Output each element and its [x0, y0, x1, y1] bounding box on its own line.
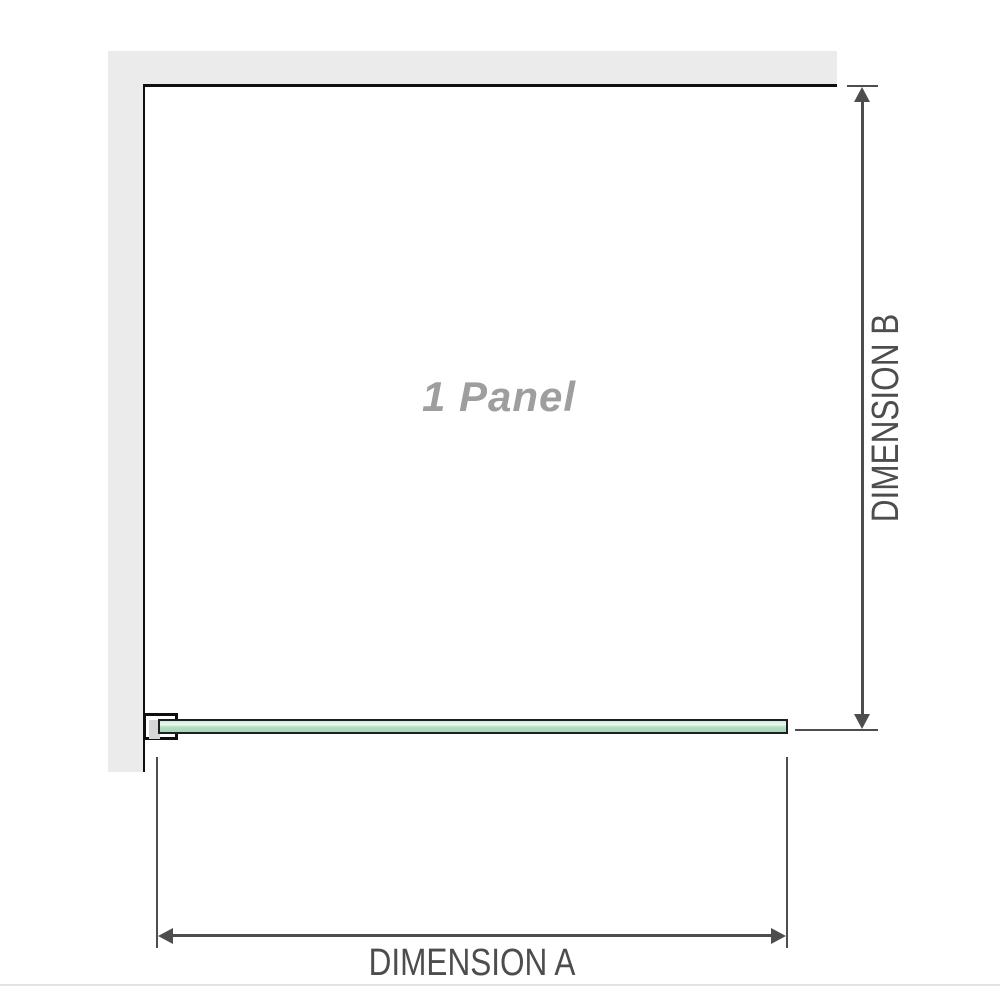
wall-left [108, 51, 143, 772]
dimension-a-line [170, 934, 774, 937]
dimension-a-right-tick [786, 757, 788, 948]
dimension-b-arrow-up-icon [854, 87, 870, 102]
panel-top-edge-line [143, 84, 837, 87]
dimension-a-label: DIMENSION A [265, 941, 680, 985]
dimension-b-label: DIMENSION B [864, 211, 908, 626]
dimension-a-left-tick [156, 757, 158, 948]
dimension-a-arrow-left-icon [158, 928, 173, 944]
dimension-b-bottom-tick [795, 729, 878, 731]
page-baseline-divider [0, 984, 1000, 986]
shower-panel-diagram: DIMENSION B DIMENSION A 1 Panel [0, 0, 1000, 1000]
panel-count-label: 1 Panel [299, 370, 699, 424]
dimension-b-arrow-down-icon [854, 714, 870, 729]
glass-panel-bar [158, 719, 788, 734]
dimension-a-arrow-right-icon [771, 928, 786, 944]
wall-top [108, 51, 837, 85]
panel-left-edge-line [143, 84, 145, 772]
